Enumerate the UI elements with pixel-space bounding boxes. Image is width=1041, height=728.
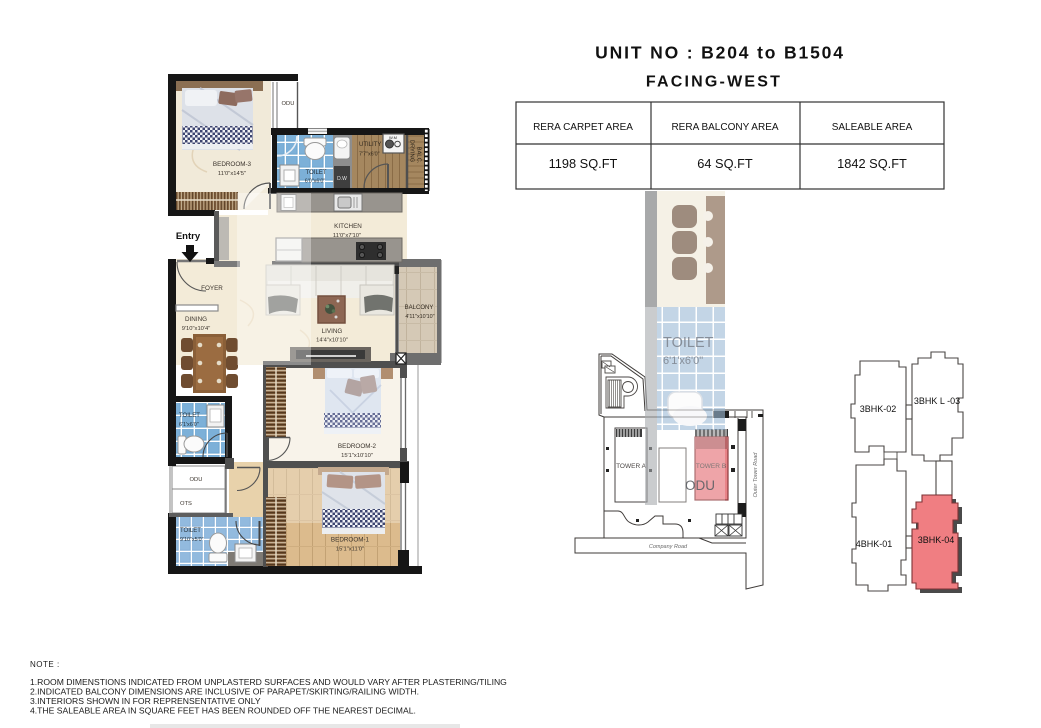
svg-text:Outer Tower Road: Outer Tower Road xyxy=(753,452,759,498)
svg-text:TOILET: TOILET xyxy=(179,413,200,419)
svg-text:9'10"x5'0": 9'10"x5'0" xyxy=(180,537,204,543)
svg-text:3BHK-02: 3BHK-02 xyxy=(860,404,897,414)
svg-text:Company Road: Company Road xyxy=(649,544,688,550)
svg-text:TOILET: TOILET xyxy=(663,335,714,351)
svg-text:D.W: D.W xyxy=(337,176,347,182)
svg-text:UTILITY: UTILITY xyxy=(359,142,381,148)
svg-text:1.ROOM DIMENSTIONS INDICATED F: 1.ROOM DIMENSTIONS INDICATED FROM UNPLAS… xyxy=(30,677,507,687)
svg-text:15'1"x11'0": 15'1"x11'0" xyxy=(336,547,364,553)
svg-text:6'1'x6'0": 6'1'x6'0" xyxy=(179,422,199,428)
svg-text:FOYER: FOYER xyxy=(201,285,223,292)
svg-text:OTS: OTS xyxy=(180,501,192,507)
svg-text:15'1"x10'10": 15'1"x10'10" xyxy=(341,453,373,459)
svg-text:3BHK L -03: 3BHK L -03 xyxy=(914,396,960,406)
svg-text:6'0"x6'0": 6'0"x6'0" xyxy=(305,179,326,185)
svg-text:BEDROOM-1: BEDROOM-1 xyxy=(331,537,370,544)
svg-text:Entry: Entry xyxy=(176,231,201,242)
svg-text:9'10"x10'4": 9'10"x10'4" xyxy=(182,326,211,332)
svg-text:DRYING: DRYING xyxy=(409,140,415,163)
svg-text:UNIT NO : B204 to B1504: UNIT NO : B204 to B1504 xyxy=(595,43,845,63)
svg-text:BALCONY: BALCONY xyxy=(405,305,434,311)
svg-text:4'11"x10'10": 4'11"x10'10" xyxy=(405,314,434,320)
svg-text:1198 SQ.FT: 1198 SQ.FT xyxy=(549,156,618,171)
svg-text:3BHK-04: 3BHK-04 xyxy=(918,535,955,545)
svg-text:NOTE :: NOTE : xyxy=(30,660,60,669)
svg-text:ODU: ODU xyxy=(282,101,295,107)
svg-text:LIVING: LIVING xyxy=(322,328,343,335)
svg-text:TOWER A: TOWER A xyxy=(616,463,647,470)
svg-text:KITCHEN: KITCHEN xyxy=(334,223,362,230)
svg-text:TOILET: TOILET xyxy=(180,528,201,534)
svg-text:FACING-WEST: FACING-WEST xyxy=(646,74,782,91)
svg-text:11'0"x14'5": 11'0"x14'5" xyxy=(218,171,246,177)
svg-text:6'1'x6'0": 6'1'x6'0" xyxy=(663,355,703,367)
svg-text:RERA CARPET AREA: RERA CARPET AREA xyxy=(533,122,633,133)
svg-text:64 SQ.FT: 64 SQ.FT xyxy=(697,156,753,171)
svg-text:BEDROOM-2: BEDROOM-2 xyxy=(338,443,377,450)
svg-text:W.M: W.M xyxy=(389,135,397,140)
svg-text:RERA BALCONY AREA: RERA BALCONY AREA xyxy=(671,122,778,133)
svg-text:1842 SQ.FT: 1842 SQ.FT xyxy=(837,156,907,171)
svg-text:BEDROOM-3: BEDROOM-3 xyxy=(213,161,252,168)
svg-text:ODU: ODU xyxy=(190,477,203,483)
svg-text:SALEABLE AREA: SALEABLE AREA xyxy=(832,122,913,133)
svg-text:DINING: DINING xyxy=(185,316,207,323)
svg-text:2.INDICATED BALCONY DIMENSIONS: 2.INDICATED BALCONY DIMENSIONS ARE INCLU… xyxy=(30,687,419,697)
svg-text:3.INTERIORS SHOWN IN FOR REPRE: 3.INTERIORS SHOWN IN FOR REPRENSENTATIVE… xyxy=(30,696,261,706)
svg-text:7'7"x6'0": 7'7"x6'0" xyxy=(359,152,380,158)
svg-text:4BHK-01: 4BHK-01 xyxy=(856,539,893,549)
svg-text:14'4"x10'10": 14'4"x10'10" xyxy=(316,338,348,344)
svg-text:4.THE SALEABLE AREA IN SQUARE: 4.THE SALEABLE AREA IN SQUARE FEET HAS B… xyxy=(30,706,416,716)
svg-text:11'0"x7'10": 11'0"x7'10" xyxy=(333,233,361,239)
svg-text:TOILET: TOILET xyxy=(306,170,327,176)
svg-text:BALC.: BALC. xyxy=(416,147,422,164)
svg-text:ODU: ODU xyxy=(685,478,715,493)
